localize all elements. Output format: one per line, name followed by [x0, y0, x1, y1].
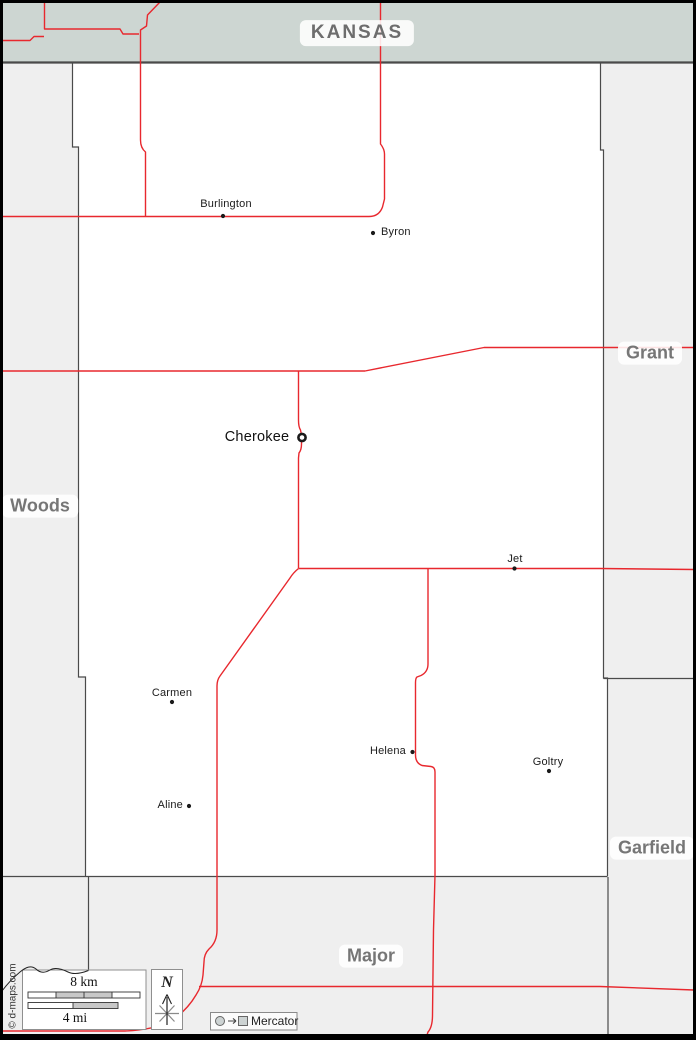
north-label: N: [161, 974, 173, 992]
grant-fill: [600, 63, 694, 678]
burlington-label: Burlington: [200, 198, 252, 210]
major-county-label: Major: [339, 945, 403, 968]
aline-label: Aline: [158, 799, 183, 811]
globe-circle-icon: [216, 1017, 225, 1026]
dmaps-credit: © d-maps.com: [8, 963, 19, 1028]
kansas-state-label: KANSAS: [300, 20, 414, 46]
cherokee-label: Cherokee: [225, 429, 289, 445]
byron-label: Byron: [381, 226, 411, 238]
map-canvas: [0, 0, 696, 1040]
county-map: KANSAS Woods Grant Garfield Major Burlin…: [0, 0, 696, 1040]
goltry-dot: [547, 769, 551, 773]
scale-bar-mi: [28, 1003, 118, 1009]
scale-km-label: 8 km: [70, 974, 97, 990]
woods-fill: [2, 63, 85, 876]
flat-map-square-icon: [239, 1017, 248, 1026]
helena-dot: [410, 750, 414, 754]
garfield-county-label: Garfield: [610, 837, 694, 860]
scale-mi-label: 4 mi: [63, 1010, 87, 1026]
helena-label: Helena: [370, 745, 406, 757]
projection-label: Mercator: [251, 1014, 298, 1028]
grant-county-label: Grant: [618, 342, 682, 365]
byron-dot: [371, 231, 375, 235]
carmen-dot: [170, 700, 174, 704]
cherokee-county-seat-marker: [298, 434, 305, 441]
region-fills: [0, 0, 696, 1040]
burlington-dot: [221, 214, 225, 218]
aline-dot: [187, 804, 191, 808]
jet-dot: [512, 566, 516, 570]
scale-bar-km: [28, 992, 140, 998]
goltry-label: Goltry: [533, 756, 564, 768]
woods-county-label: Woods: [2, 495, 78, 518]
jet-label: Jet: [507, 553, 522, 565]
carmen-label: Carmen: [152, 687, 192, 699]
